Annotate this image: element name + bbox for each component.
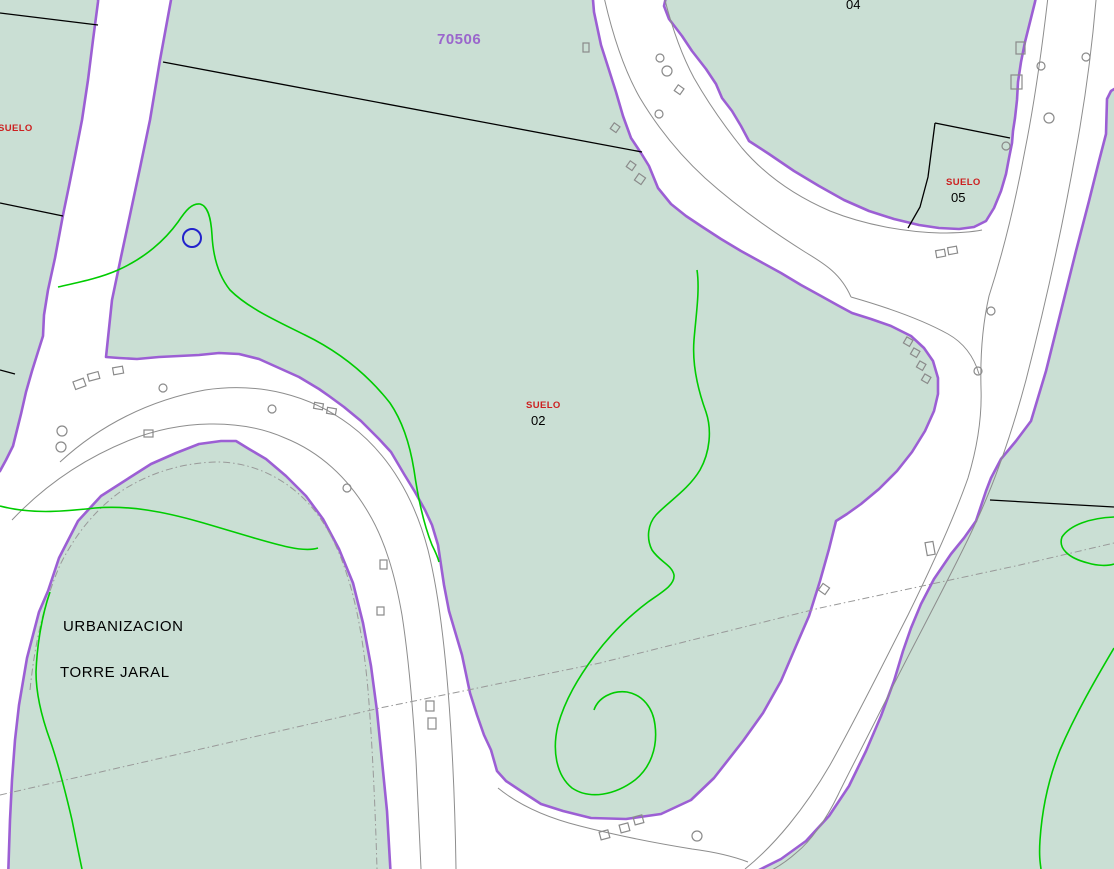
suelo-02-number: 02 [531,413,545,428]
urbanization-label-line1: URBANIZACION [63,618,184,635]
parcel-04-label: 04 [846,0,860,12]
suelo-left-label: SUELO [0,123,33,134]
suelo-05-number: 05 [951,190,965,205]
cadastral-map: 70506 04 SUELO SUELO 05 SUELO 02 URBANIZ… [0,0,1114,869]
sector-code-label: 70506 [437,31,481,48]
urbanization-label-line2: TORRE JARAL [60,664,170,681]
cadastral-map-viewport: 70506 04 SUELO SUELO 05 SUELO 02 URBANIZ… [0,0,1114,869]
suelo-02-title: SUELO [526,400,561,411]
suelo-05-title: SUELO [946,177,981,188]
